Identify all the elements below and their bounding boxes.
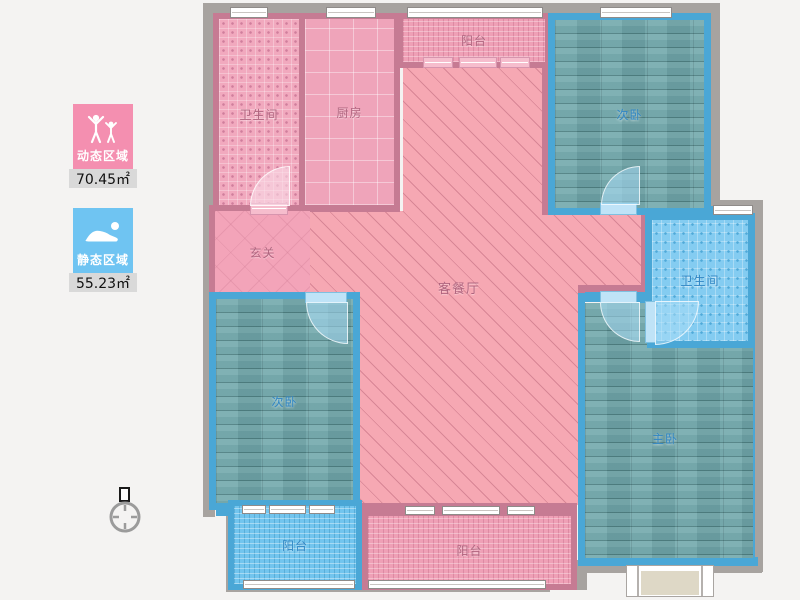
legend-static-area[interactable]: 静态区域 — [73, 208, 133, 273]
window — [242, 505, 266, 514]
window — [407, 7, 543, 18]
window — [309, 505, 335, 514]
window — [230, 7, 268, 18]
window-sill — [423, 57, 453, 68]
room-label: 次卧 — [271, 393, 297, 410]
static-area-value: 55.23㎡ — [76, 273, 130, 293]
legend-dynamic-value: 70.45㎡ — [69, 169, 137, 188]
window — [507, 506, 535, 515]
room-label: 阳台 — [456, 542, 482, 559]
wall-segment — [585, 292, 601, 302]
legend-dynamic-label: 动态区域 — [77, 147, 129, 164]
dynamic-area-value: 70.45㎡ — [76, 169, 130, 189]
window — [405, 506, 435, 515]
window — [368, 580, 546, 589]
window — [442, 506, 500, 515]
room-label: 客餐厅 — [414, 278, 504, 297]
room-label: 阳台 — [461, 32, 487, 49]
room-label: 主卧 — [615, 430, 715, 447]
window — [269, 505, 306, 514]
legend-static-label: 静态区域 — [77, 251, 129, 268]
legend-dynamic-area[interactable]: 动态区域 — [73, 104, 133, 169]
room-label: 玄关 — [249, 244, 275, 261]
window — [326, 7, 376, 18]
bay-window-frame — [701, 566, 703, 596]
room-label: 阳台 — [282, 537, 308, 554]
room-kitchen[interactable]: 厨房 — [299, 13, 400, 211]
room-label: 次卧 — [616, 106, 642, 123]
wall-segment — [578, 293, 585, 565]
window — [600, 7, 672, 18]
window — [243, 580, 355, 589]
bay-window-sill — [641, 571, 699, 595]
window-sill — [459, 57, 497, 68]
room-label: 厨房 — [336, 104, 362, 121]
person-sleeping-icon — [82, 219, 124, 249]
room-hallway[interactable]: 玄关 — [209, 205, 310, 300]
bay-window-frame — [637, 566, 639, 596]
legend-static-value: 55.23㎡ — [69, 273, 137, 292]
room-label: 卫生间 — [239, 106, 278, 123]
people-active-icon — [83, 113, 123, 145]
window-sill — [500, 57, 530, 68]
window — [713, 205, 753, 215]
room-balcony-bottom-mid[interactable]: 阳台 — [362, 516, 577, 590]
room-label: 卫生间 — [680, 272, 719, 289]
compass-icon — [106, 486, 144, 536]
